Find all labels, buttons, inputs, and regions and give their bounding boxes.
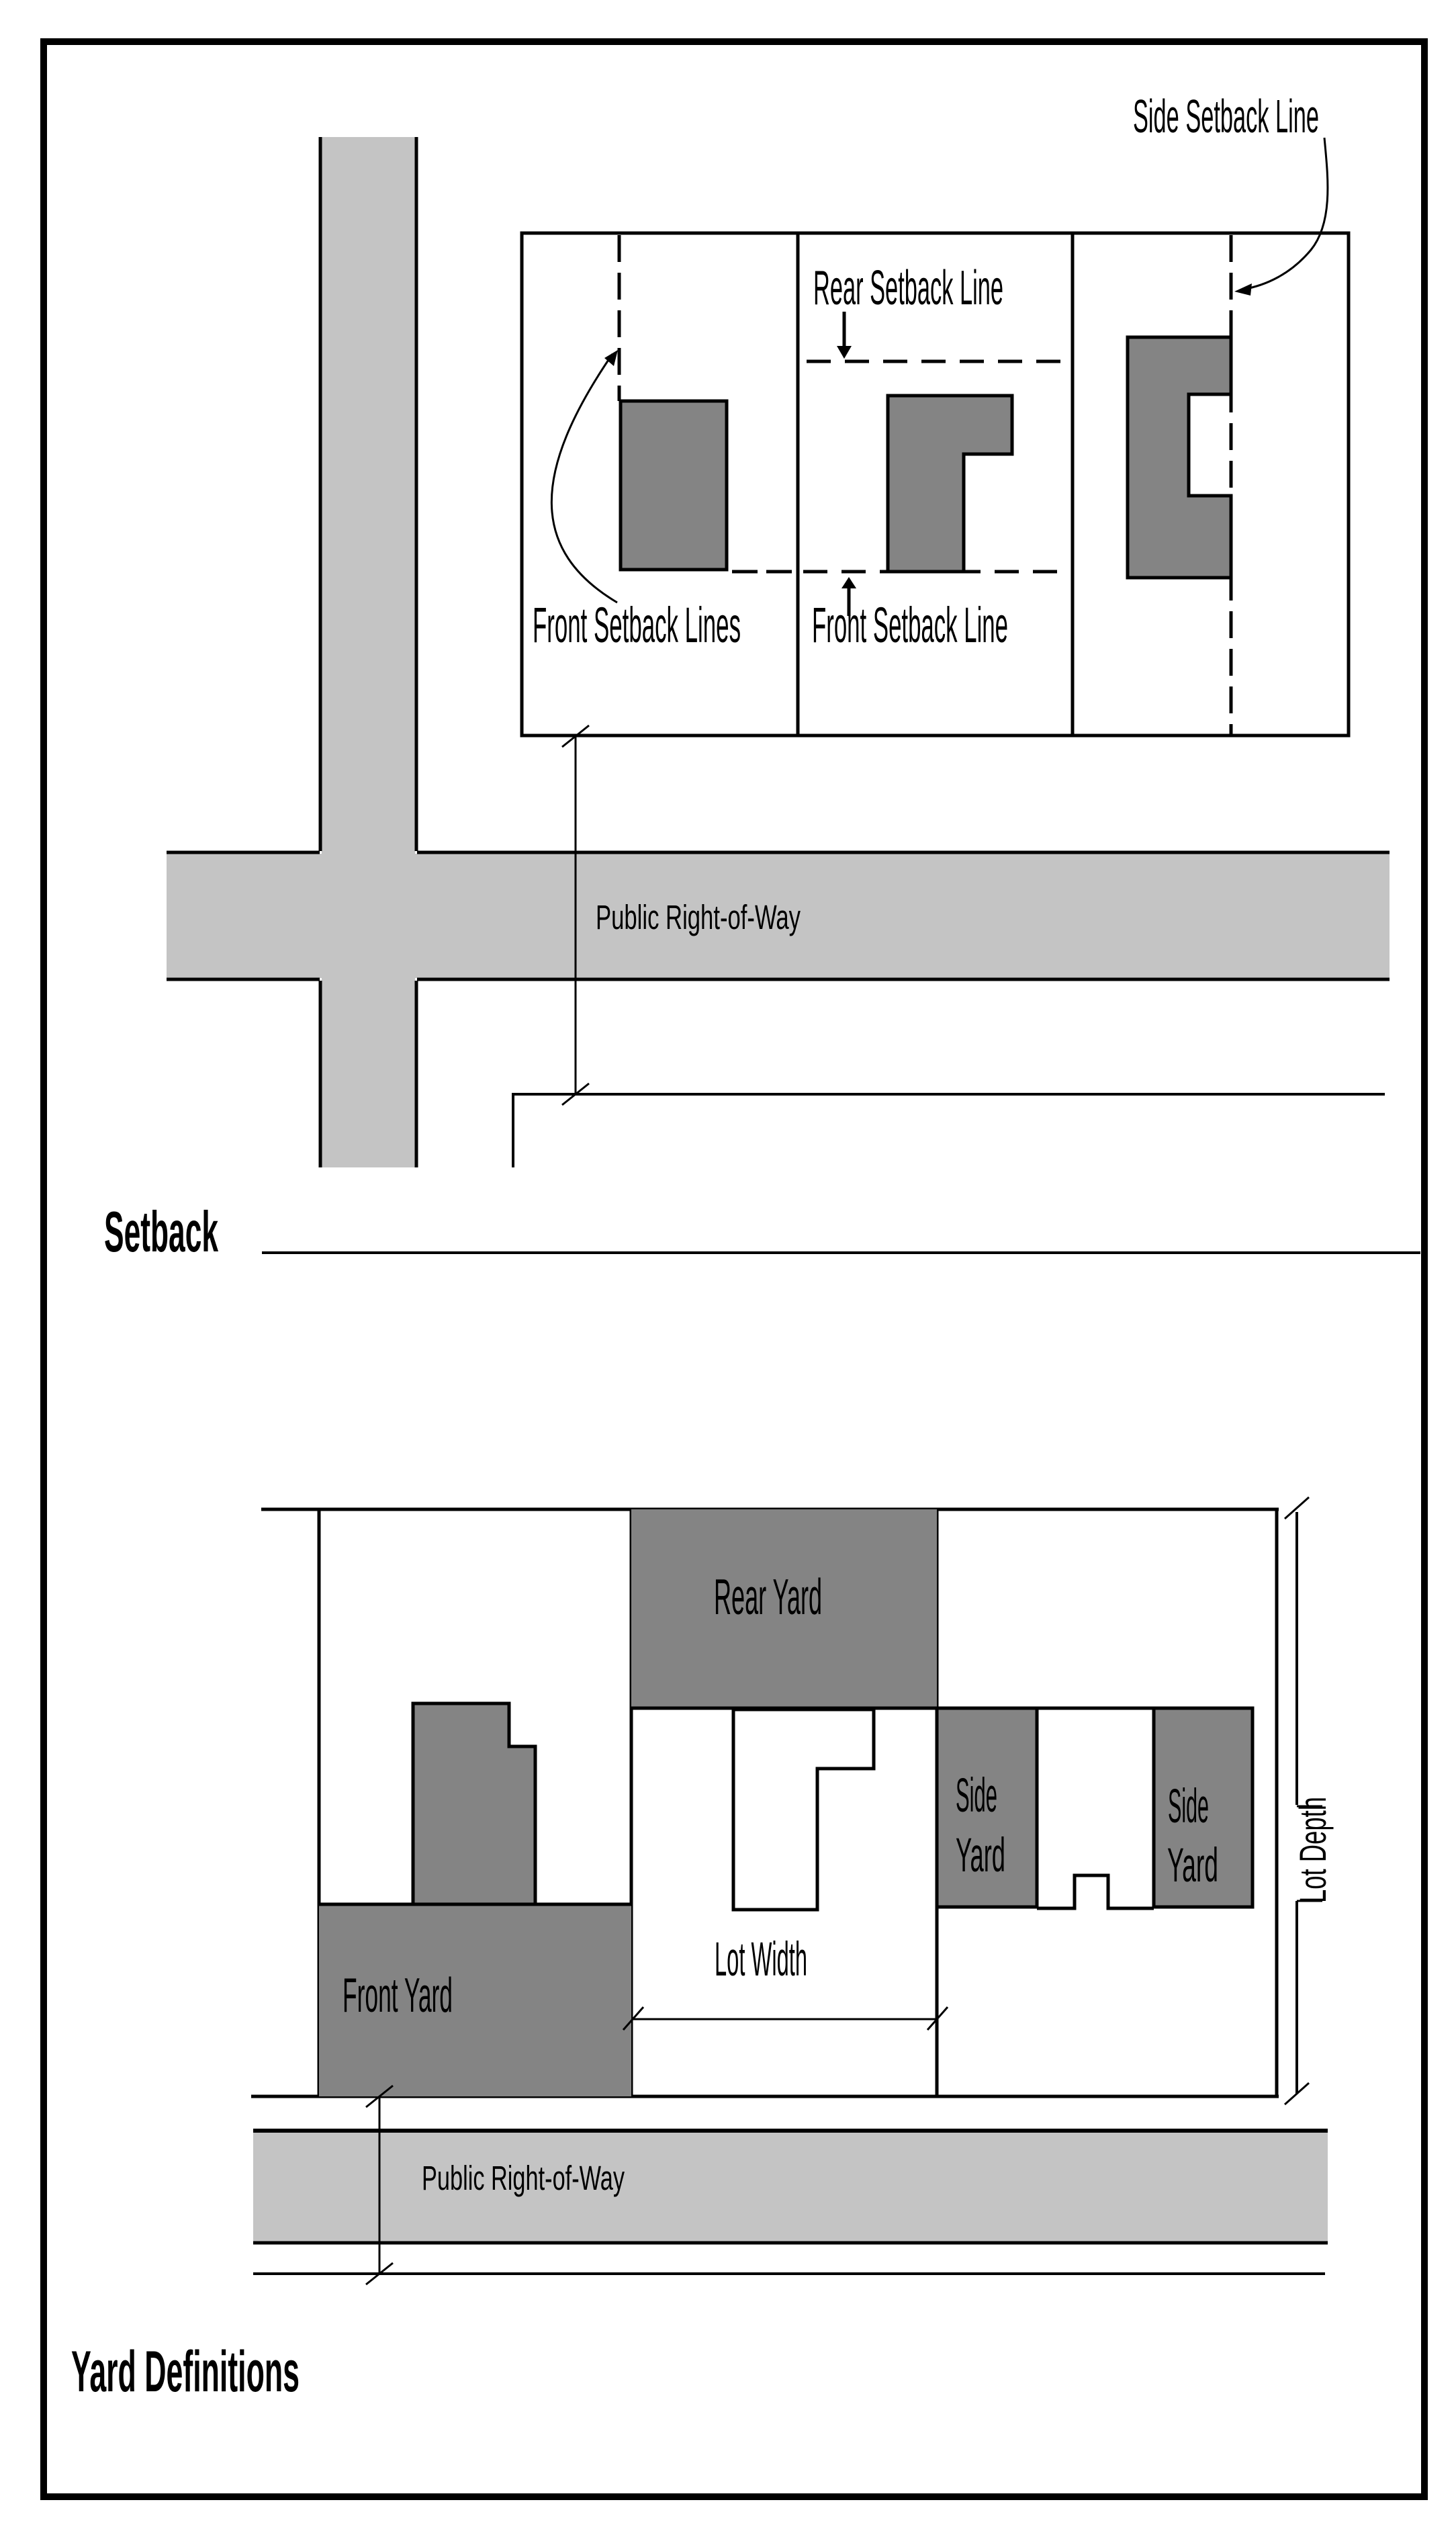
svg-text:Front Setback Line: Front Setback Line (812, 597, 1008, 653)
svg-text:Front Setback Lines: Front Setback Lines (533, 597, 741, 653)
svg-text:Side: Side (956, 1769, 997, 1822)
svg-text:Yard: Yard (1167, 1839, 1218, 1892)
svg-text:Public Right-of-Way: Public Right-of-Way (596, 898, 801, 936)
svg-text:Yard Definitions: Yard Definitions (71, 2340, 300, 2404)
svg-text:Side: Side (1168, 1780, 1209, 1833)
svg-text:Front Yard: Front Yard (343, 1969, 453, 2023)
svg-text:Lot Depth: Lot Depth (1291, 1797, 1334, 1903)
svg-text:Yard: Yard (956, 1829, 1005, 1882)
svg-text:Rear Setback Line: Rear Setback Line (813, 261, 1003, 315)
svg-text:Lot Width: Lot Width (715, 1933, 807, 1986)
svg-text:Setback: Setback (104, 1200, 218, 1264)
svg-text:Public Right-of-Way: Public Right-of-Way (422, 2159, 625, 2197)
svg-text:Rear Yard: Rear Yard (714, 1568, 822, 1625)
svg-text:Side Setback Line: Side Setback Line (1133, 90, 1319, 142)
